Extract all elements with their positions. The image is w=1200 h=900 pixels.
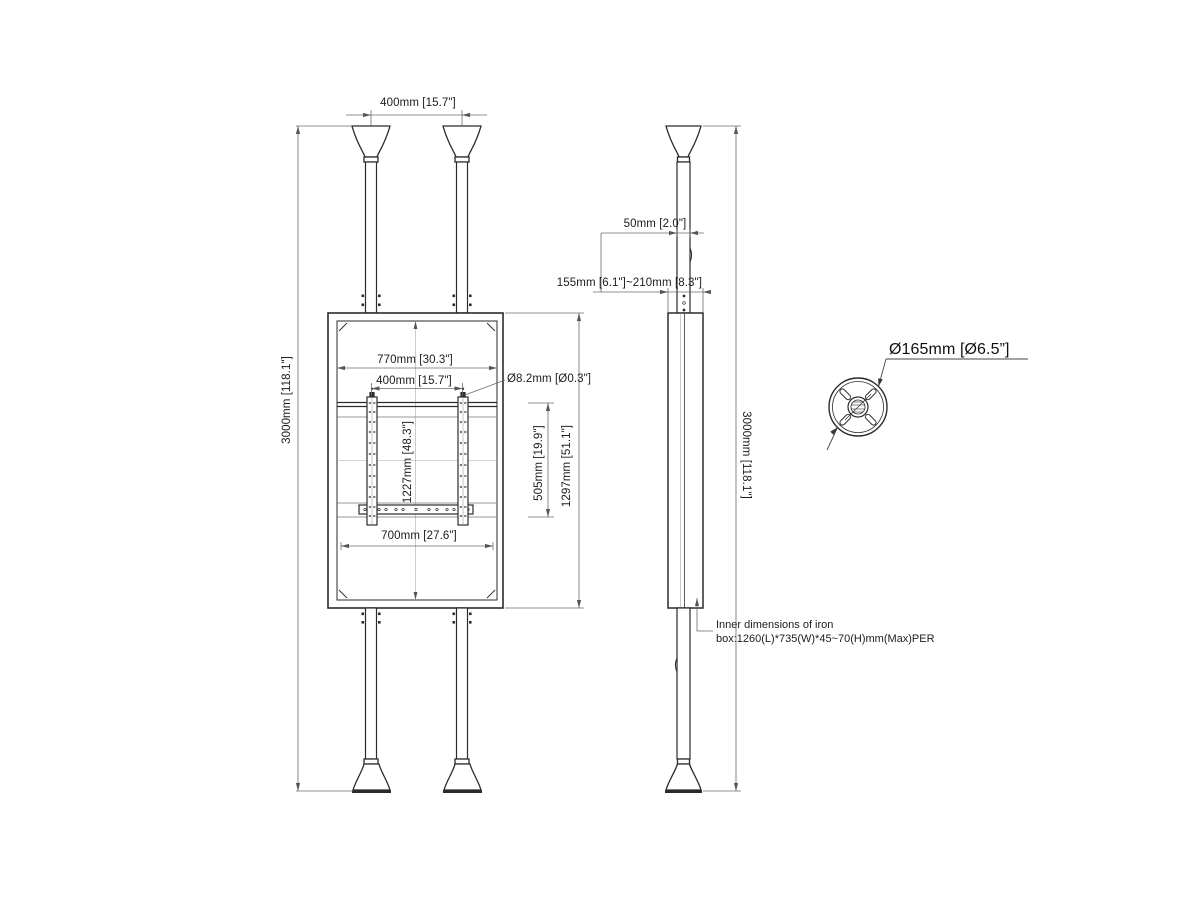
iron-box-note-line2: box:1260(L)*735(W)*45~70(H)mm(Max)PER [716,633,935,647]
pole-bolts-bottom [362,613,472,624]
ceiling-flare-left [352,126,390,162]
pole-left-lower [366,608,377,759]
dim-pole-depth: 50mm [2.0"] [624,218,687,230]
front-view [328,126,503,793]
flange-detail [827,359,1028,450]
dim-bracket-spacing: 400mm [15.7"] [376,375,452,387]
note-leader [695,598,713,631]
iron-box [668,313,703,608]
side-ceiling-flare [666,126,701,162]
pole-right-lower [457,608,468,759]
floor-base-right [443,759,482,793]
side-pole-lower [677,608,690,759]
mount-drawing-svg [0,0,1200,900]
side-pole-upper [677,162,690,313]
dim-box-depth-lines [593,288,711,312]
ceiling-flare-right [443,126,481,162]
pole-right-upper [457,162,468,313]
dim-overall-height-left: 3000mm [118.1"] [281,356,293,444]
side-floor-base [665,759,702,793]
dim-panel-bottom-width: 700mm [27.6"] [381,530,457,542]
dim-panel-height: 1297mm [51.1"] [561,425,573,507]
dim-panel-inner-width: 770mm [30.3"] [377,354,453,366]
iron-box-note: Inner dimensions of iron box:1260(L)*735… [716,619,935,646]
dim-box-depth-range: 155mm [6.1"]~210mm [8.3"] [557,277,702,289]
dim-flange-diameter: Ø165mm [Ø6.5”] [889,341,1010,359]
pole-bolts-top [362,295,472,307]
dim-hole-diameter: Ø8.2mm [Ø0.3"] [507,373,591,385]
dim-top-pole-spacing: 400mm [15.7"] [380,97,456,109]
dim-overall-height-right-lines [703,126,741,791]
dim-top-pole-spacing-lines [346,110,487,126]
dim-panel-inner-height: 1227mm [48.3"] [402,421,414,503]
dim-bracket-height: 505mm [19.9"] [533,425,545,501]
flange-hub [845,394,871,420]
pole-left-upper [366,162,377,313]
bracket-rail-left [367,388,377,525]
bracket-rail-right [458,388,468,525]
iron-box-note-line1: Inner dimensions of iron [716,619,935,633]
dim-overall-height-right: 3000mm [118.1"] [740,411,752,499]
technical-drawing-canvas: 400mm [15.7"] 3000mm [118.1"] 770mm [30.… [0,0,1200,900]
floor-base-left [352,759,391,793]
